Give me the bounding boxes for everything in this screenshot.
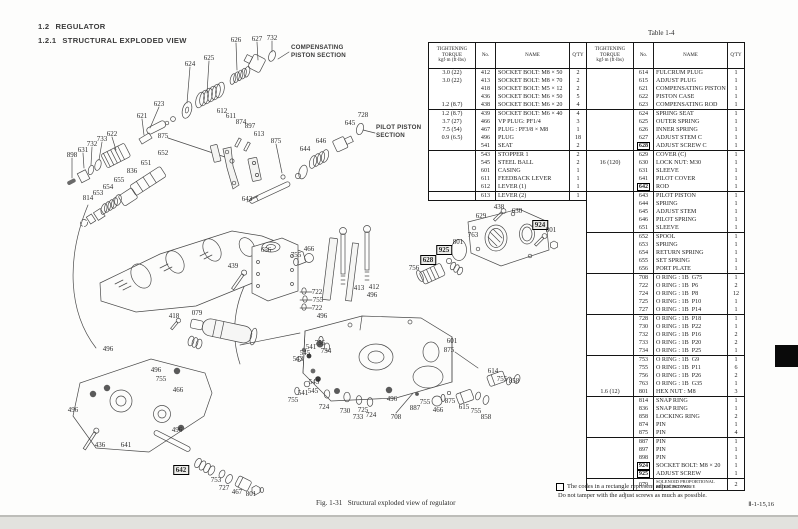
part-name: PLUG <box>496 134 569 142</box>
part-name: SOCKET BOLT: M5 × 12 <box>496 85 569 93</box>
part-name: CASING <box>496 167 569 175</box>
part-callout: 755 <box>313 296 324 304</box>
part-number: 645 <box>633 208 654 216</box>
part-torque <box>587 421 633 429</box>
parts-table-right: TIGHTENING TORQUE kgf·m (ft·lbs) No. NAM… <box>586 42 745 491</box>
part-number: 728 <box>633 315 654 323</box>
part-name: SPRING <box>654 200 727 208</box>
part-name: LOCK NUT: M30 <box>654 159 727 167</box>
part-number: 630 <box>633 159 654 167</box>
part-qty: 3 <box>569 118 586 126</box>
part-qty: 4 <box>569 110 586 118</box>
part-callout: 496 <box>103 345 114 353</box>
part-torque <box>429 85 475 93</box>
part-torque <box>587 380 633 388</box>
part-torque: 0.9 (6.5) <box>429 134 475 142</box>
part-number: 652 <box>633 233 654 241</box>
part-qty: 1 <box>569 126 586 134</box>
part-callout: 724 <box>366 411 377 419</box>
part-name: ROD <box>654 183 727 191</box>
part-qty: 1 <box>727 274 744 282</box>
part-torque: 3.7 (27) <box>429 118 475 126</box>
part-callout: 730 <box>340 407 351 415</box>
part-qty: 2 <box>569 142 586 150</box>
part-number: 545 <box>475 159 496 167</box>
part-name: O RING : 1B P26 <box>654 372 727 380</box>
part-qty: 1 <box>727 397 744 405</box>
part-torque <box>429 183 475 191</box>
parts-table-left: TIGHTENING TORQUE kgf·m (ft·lbs) No. NAM… <box>428 42 587 201</box>
part-torque <box>587 85 633 93</box>
part-torque <box>429 142 475 150</box>
part-torque <box>587 372 633 380</box>
part-row: 708O RING : 1B G751 <box>587 273 744 282</box>
part-qty: 1 <box>569 192 586 200</box>
part-torque <box>587 274 633 282</box>
part-name: O RING : 1B P6 <box>654 282 727 290</box>
footnote: The codes in a rectangle represent adjus… <box>556 482 776 509</box>
part-row: 601CASING1 <box>429 167 586 175</box>
part-number: 631 <box>633 167 654 175</box>
part-callout: 763 <box>468 231 479 239</box>
part-callout: 496 <box>387 395 398 403</box>
part-qty: 1 <box>727 85 744 93</box>
part-number: 624 <box>633 110 654 118</box>
part-torque <box>587 257 633 265</box>
part-number: 543 <box>475 151 496 159</box>
part-qty: 1 <box>727 405 744 413</box>
part-torque <box>587 446 633 454</box>
part-qty: 1 <box>727 257 744 265</box>
part-row: 614FULCRUM PLUG1 <box>587 69 744 77</box>
boxed-part-number: 642 <box>637 183 650 191</box>
part-name: ADJUST SCREW <box>654 470 727 478</box>
part-number: 466 <box>475 118 496 126</box>
part-row: 651SLEEVE1 <box>587 224 744 232</box>
part-callout: 496 <box>172 426 183 434</box>
part-row: 728O RING : 1B P181 <box>587 314 744 323</box>
part-number: 875 <box>633 429 654 437</box>
part-row: 875PIN4 <box>587 429 744 437</box>
part-qty: 2 <box>727 413 744 421</box>
part-callout: 545 <box>308 387 319 395</box>
part-callout: 630 <box>512 207 523 215</box>
part-qty: 2 <box>727 372 744 380</box>
part-qty: 1 <box>727 142 744 150</box>
part-name: FULCRUM PLUG <box>654 69 727 77</box>
part-torque <box>587 470 633 478</box>
part-number: 727 <box>633 306 654 314</box>
part-name: SPOOL <box>654 233 727 241</box>
part-number: 641 <box>633 175 654 183</box>
part-name: PORT PLATE <box>654 265 727 273</box>
boxed-part-number: 924 <box>637 462 650 470</box>
part-number: 627 <box>633 134 654 142</box>
part-name: SOCKET BOLT: M8 × 20 <box>654 462 727 470</box>
part-torque <box>587 454 633 462</box>
part-row: 814SNAP RING1 <box>587 396 744 405</box>
part-torque <box>587 438 633 446</box>
footnote-line2: Do not tamper with the adjust screws as … <box>558 491 776 500</box>
part-number: 614 <box>633 69 654 77</box>
part-number: 628 <box>633 142 654 150</box>
part-qty: 1 <box>727 265 744 273</box>
part-row: 1.2 (8.7)438SOCKET BOLT: M6 × 204 <box>429 101 586 109</box>
part-row: 7.5 (54)467PLUG : PF3/8 × M81 <box>429 126 586 134</box>
part-row: 652SPOOL1 <box>587 232 744 241</box>
part-callout: 733 <box>97 135 108 143</box>
part-number: 756 <box>633 372 654 380</box>
part-callout: 728 <box>358 111 369 119</box>
part-row: 924SOCKET BOLT: M8 × 201 <box>587 462 744 470</box>
part-callout: 621 <box>137 112 148 120</box>
part-callout: 755 <box>291 251 302 259</box>
part-number: 418 <box>475 85 496 93</box>
part-row: 898PIN1 <box>587 454 744 462</box>
part-qty: 1 <box>727 470 744 478</box>
part-row: 646PILOT SPRING1 <box>587 216 744 224</box>
part-name: INNER SPRING <box>654 126 727 134</box>
part-qty: 2 <box>569 77 586 85</box>
part-row: 836SNAP RING1 <box>587 405 744 413</box>
part-number: 655 <box>633 257 654 265</box>
part-number: 496 <box>475 134 496 142</box>
part-torque: 1.6 (12) <box>587 388 633 396</box>
part-name: O RING : 1B G75 <box>654 274 727 282</box>
part-name: ADJUST SCREW C <box>654 142 727 150</box>
part-torque <box>587 151 633 159</box>
part-qty: 1 <box>727 183 744 191</box>
part-number: 734 <box>633 347 654 355</box>
part-name: PILOT PISTON <box>654 192 727 200</box>
part-row: 3.0 (22)412SOCKET BOLT: M8 × 502 <box>429 69 586 77</box>
part-number: 732 <box>633 331 654 339</box>
part-torque <box>587 347 633 355</box>
part-number: 626 <box>633 126 654 134</box>
part-callout: 643 <box>242 195 253 203</box>
part-torque <box>587 356 633 364</box>
part-number: 651 <box>633 224 654 232</box>
part-qty: 2 <box>569 151 586 159</box>
part-number: 753 <box>633 356 654 364</box>
part-name: SEAT <box>496 142 569 150</box>
part-row: 1.6 (12)801HEX NUT : M83 <box>587 388 744 396</box>
part-torque <box>587 282 633 290</box>
part-qty: 1 <box>727 93 744 101</box>
part-torque <box>587 290 633 298</box>
part-torque <box>429 192 475 200</box>
part-qty: 1 <box>569 167 586 175</box>
part-name: SNAP RING <box>654 405 727 413</box>
part-number: 643 <box>633 192 654 200</box>
part-qty: 1 <box>727 462 744 470</box>
part-row: 733O RING : 1B P202 <box>587 339 744 347</box>
part-number: 801 <box>633 388 654 396</box>
part-row: 622PISTON CASE1 <box>587 93 744 101</box>
part-number: 898 <box>633 454 654 462</box>
part-qty: 1 <box>727 167 744 175</box>
part-qty: 1 <box>569 175 586 183</box>
part-number: 644 <box>633 200 654 208</box>
part-callout: 613 <box>254 130 265 138</box>
part-number: 925 <box>633 470 654 478</box>
part-name: PLUG : PF3/8 × M8 <box>496 126 569 134</box>
part-torque <box>587 397 633 405</box>
part-callout: 543 <box>293 355 304 363</box>
part-name: SOCKET BOLT: M6 × 50 <box>496 93 569 101</box>
part-row: 3.7 (27)466VP PLUG: PF1/43 <box>429 118 586 126</box>
part-qty: 1 <box>727 200 744 208</box>
part-callout: 875 <box>158 132 169 140</box>
part-callout: 629 <box>476 212 487 220</box>
part-row: 753O RING : 1B G91 <box>587 355 744 364</box>
part-callout: 466 <box>173 386 184 394</box>
scan-bottom-edge <box>0 515 798 529</box>
part-qty: 18 <box>569 134 586 142</box>
footnote-line1: The codes in a rectangle represent adjus… <box>567 482 692 491</box>
part-name: O RING : 1B P22 <box>654 323 727 331</box>
part-row: 925ADJUST SCREW1 <box>587 470 744 478</box>
part-name: SET SPRING <box>654 257 727 265</box>
part-callout: 541 <box>298 389 309 397</box>
part-number: 858 <box>633 413 654 421</box>
boxed-part-number: 925 <box>637 470 650 478</box>
boxed-part-callout: 642 <box>173 465 189 475</box>
part-number: 623 <box>633 101 654 109</box>
part-number: 436 <box>475 93 496 101</box>
part-row: 642ROD1 <box>587 183 744 191</box>
part-number: 874 <box>633 421 654 429</box>
part-callout: 756 <box>409 264 420 272</box>
part-callout: 645 <box>345 119 356 127</box>
part-torque <box>587 110 633 118</box>
part-number: 612 <box>475 183 496 191</box>
part-number: 656 <box>633 265 654 273</box>
part-row: 545STEEL BALL2 <box>429 159 586 167</box>
part-callout: 641 <box>121 441 132 449</box>
part-number: 733 <box>633 339 654 347</box>
part-qty: 1 <box>727 118 744 126</box>
part-callout: 622 <box>107 130 118 138</box>
part-row: 887PIN1 <box>587 437 744 446</box>
part-name: SOCKET BOLT: M6 × 40 <box>496 110 569 118</box>
part-row: 645ADJUST STEM1 <box>587 208 744 216</box>
part-qty: 1 <box>727 151 744 159</box>
part-number: 412 <box>475 69 496 77</box>
part-qty: 4 <box>569 101 586 109</box>
part-number: 611 <box>475 175 496 183</box>
part-callout: 652 <box>158 149 169 157</box>
part-name: COVER (C) <box>654 151 727 159</box>
part-callout: 601 <box>447 337 458 345</box>
part-callout: 466 <box>304 245 315 253</box>
part-callout: 624 <box>185 60 196 68</box>
part-torque <box>587 462 633 470</box>
manual-page: 1.2REGULATOR 1.2.1STRUCTURAL EXPLODED VI… <box>0 0 798 529</box>
part-qty: 1 <box>727 192 744 200</box>
part-row: 621COMPENSATING PISTON1 <box>587 85 744 93</box>
part-name: PIN <box>654 438 727 446</box>
part-number: 615 <box>633 77 654 85</box>
part-row: 624SPRING SEAT1 <box>587 109 744 118</box>
part-name: O RING : 1B P25 <box>654 347 727 355</box>
part-callout: 727 <box>219 484 230 492</box>
part-qty: 1 <box>727 454 744 462</box>
part-qty: 1 <box>727 249 744 257</box>
part-torque <box>587 241 633 249</box>
part-callout: 626 <box>231 36 242 44</box>
part-name: O RING : 1B P18 <box>654 315 727 323</box>
part-number: 601 <box>475 167 496 175</box>
part-callout: 801 <box>546 226 557 234</box>
part-callout: 753 <box>211 476 222 484</box>
part-callout: 543 <box>309 378 320 386</box>
part-torque <box>587 224 633 232</box>
part-row: 644SPRING1 <box>587 200 744 208</box>
part-callout: 496 <box>68 406 79 414</box>
part-torque: 3.0 (22) <box>429 69 475 77</box>
page-edge-tab <box>775 345 798 367</box>
part-row: 732O RING : 1B P162 <box>587 331 744 339</box>
part-torque <box>587 323 633 331</box>
column-header-qty: Q'TY <box>727 43 744 68</box>
part-torque <box>587 298 633 306</box>
part-number: 625 <box>633 118 654 126</box>
part-qty: 2 <box>569 85 586 93</box>
part-qty: 1 <box>727 101 744 109</box>
part-number: 897 <box>633 446 654 454</box>
part-callout: 438 <box>494 203 505 211</box>
part-callout: 755 <box>156 375 167 383</box>
part-name: PILOT COVER <box>654 175 727 183</box>
part-qty: 2 <box>727 339 744 347</box>
part-name: SPRING <box>654 241 727 249</box>
part-callout: 614 <box>488 367 499 375</box>
part-callout: 858 <box>481 413 492 421</box>
part-torque <box>587 249 633 257</box>
part-number: 642 <box>633 183 654 191</box>
part-number: 887 <box>633 438 654 446</box>
part-name: SOCKET BOLT: M8 × 50 <box>496 69 569 77</box>
part-torque <box>587 216 633 224</box>
part-row: 627ADJUST STEM C1 <box>587 134 744 142</box>
part-callout: 625 <box>204 54 215 62</box>
part-callout: 496 <box>151 366 162 374</box>
part-row: 725O RING : 1B P101 <box>587 298 744 306</box>
part-callout: 897 <box>245 122 256 130</box>
part-name: O RING : 1B P14 <box>654 306 727 314</box>
part-qty: 3 <box>727 388 744 396</box>
part-callout: 656 <box>261 246 272 254</box>
part-row: 858LOCKING RING2 <box>587 413 744 421</box>
part-row: 613LEVER (2)1 <box>429 191 586 200</box>
part-number: 755 <box>633 364 654 372</box>
part-qty: 2 <box>569 159 586 167</box>
part-row: 543STOPPER 12 <box>429 150 586 159</box>
part-qty: 2 <box>569 69 586 77</box>
part-name: LOCKING RING <box>654 413 727 421</box>
part-row: 643PILOT PISTON1 <box>587 191 744 200</box>
part-name: PIN <box>654 446 727 454</box>
part-torque <box>587 413 633 421</box>
part-name: ADJUST PLUG <box>654 77 727 85</box>
part-callout: 722 <box>312 304 323 312</box>
part-number: 814 <box>633 397 654 405</box>
part-torque <box>429 175 475 183</box>
part-qty: 1 <box>727 77 744 85</box>
part-callout: 755 <box>288 396 299 404</box>
part-torque <box>587 339 633 347</box>
part-callout: 814 <box>83 194 94 202</box>
part-callout: 732 <box>267 34 278 42</box>
part-number: 646 <box>633 216 654 224</box>
column-header-name: NAME <box>496 43 569 68</box>
part-number: 724 <box>633 290 654 298</box>
figure-caption: Fig. 1-31 Structural exploded view of re… <box>316 499 456 507</box>
column-header-no: No. <box>633 43 654 68</box>
part-callout: 875 <box>271 137 282 145</box>
part-qty: 2 <box>727 331 744 339</box>
part-row: 436SOCKET BOLT: M6 × 505 <box>429 93 586 101</box>
part-callout: 496 <box>367 291 378 299</box>
part-torque <box>429 159 475 167</box>
part-row: 730O RING : 1B P221 <box>587 323 744 331</box>
part-name: O RING : 1B P11 <box>654 364 727 372</box>
part-qty: 1 <box>727 134 744 142</box>
part-number: 438 <box>475 101 496 109</box>
part-name: RETURN SPRING <box>654 249 727 257</box>
part-callout: 654 <box>103 183 114 191</box>
part-row: 724O RING : 1B P812 <box>587 290 744 298</box>
part-number: 654 <box>633 249 654 257</box>
part-torque: 3.0 (22) <box>429 77 475 85</box>
part-callout: 611 <box>226 112 236 120</box>
part-row: 734O RING : 1B P251 <box>587 347 744 355</box>
part-torque <box>587 192 633 200</box>
part-qty: 1 <box>727 298 744 306</box>
part-qty: 4 <box>727 429 744 437</box>
part-number: 730 <box>633 323 654 331</box>
part-qty: 1 <box>727 233 744 241</box>
part-row: 756O RING : 1B P262 <box>587 372 744 380</box>
part-qty: 1 <box>727 159 744 167</box>
part-name: SNAP RING <box>654 397 727 405</box>
part-torque <box>587 208 633 216</box>
part-number: 413 <box>475 77 496 85</box>
part-torque <box>587 175 633 183</box>
part-row: 641PILOT COVER1 <box>587 175 744 183</box>
part-torque: 1.2 (8.7) <box>429 110 475 118</box>
part-callout: 887 <box>410 404 421 412</box>
part-row: 727O RING : 1B P141 <box>587 306 744 314</box>
part-callout: 467 <box>232 488 243 496</box>
part-torque <box>429 151 475 159</box>
compensating-piston-section-label: COMPENSATING PISTON SECTION <box>291 44 346 59</box>
part-callout: 836 <box>127 167 138 175</box>
part-callout: 755 <box>420 398 431 406</box>
part-qty: 1 <box>727 241 744 249</box>
part-torque <box>587 77 633 85</box>
part-name: LEVER (2) <box>496 192 569 200</box>
part-name: PIN <box>654 454 727 462</box>
part-name: O RING : 1B G9 <box>654 356 727 364</box>
part-callout: 801 <box>246 490 257 498</box>
part-torque <box>587 364 633 372</box>
part-callout: 898 <box>67 151 78 159</box>
part-name: FEEDBACK LEVER <box>496 175 569 183</box>
part-number: 722 <box>633 282 654 290</box>
part-qty: 1 <box>727 421 744 429</box>
